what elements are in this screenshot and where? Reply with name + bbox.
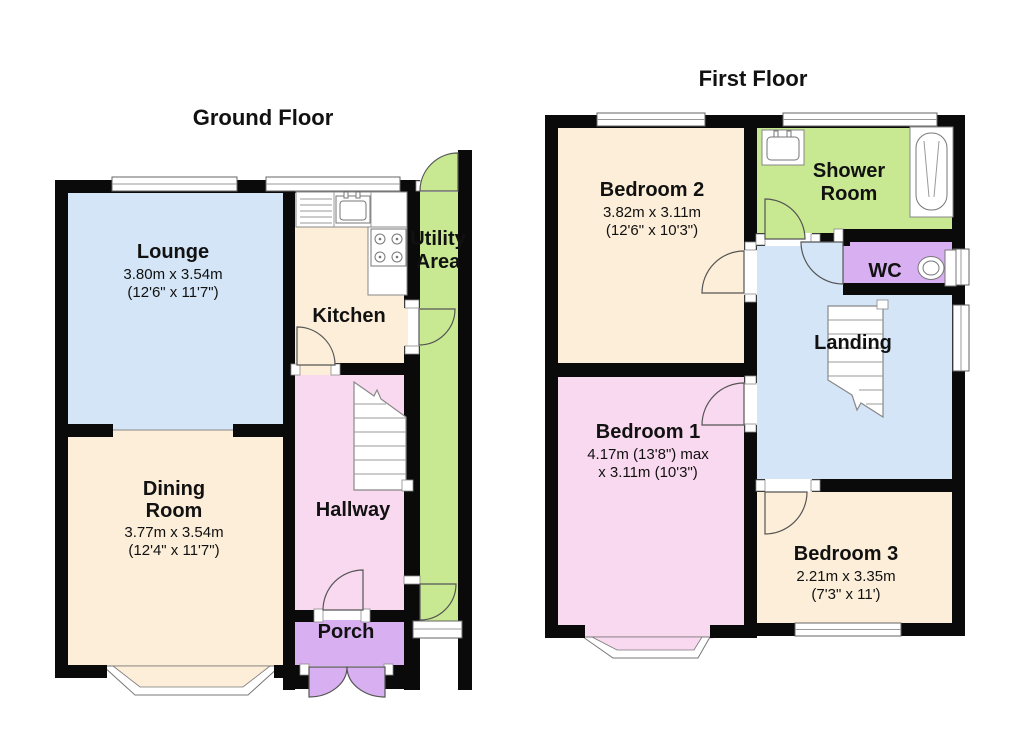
porch-front-door-left-arc	[309, 667, 347, 697]
dining-label-line2: Room	[146, 500, 203, 522]
dining-label-line1: Dining	[143, 478, 205, 500]
bedroom3-label: Bedroom 3	[794, 543, 898, 565]
room-bedroom1-baygap	[585, 620, 713, 639]
bedroom1-label: Bedroom 1	[596, 421, 700, 443]
wc-label: WC	[868, 260, 901, 282]
first-floor-plan: First Floor Bedroom 2 3.82m x 3.11m (12'…	[545, 66, 969, 658]
bathtub-icon	[910, 127, 953, 217]
bedroom1-dims-imperial: x 3.11m (10'3")	[598, 464, 698, 481]
first-floor-title: First Floor	[699, 66, 808, 91]
porch-front-door-right-arc	[347, 667, 385, 697]
porch-label: Porch	[318, 621, 375, 643]
dining-dims-imperial: (12'4" x 11'7")	[128, 542, 219, 559]
floorplan-page: Ground Floor Lounge 3.80m x 3.54m (12'6"…	[0, 0, 1024, 745]
utility-label-line1: Utility	[410, 228, 466, 250]
lounge-dims-imperial: (12'6" x 11'7")	[127, 284, 218, 301]
ground-floor-plan: Ground Floor Lounge 3.80m x 3.54m (12'6"…	[55, 105, 472, 697]
lounge-label: Lounge	[137, 241, 209, 263]
room-lounge	[67, 192, 283, 432]
floorplan-drawing: Ground Floor Lounge 3.80m x 3.54m (12'6"…	[0, 0, 1024, 745]
sink-icon	[336, 192, 370, 223]
hallway-label: Hallway	[316, 499, 391, 521]
shower-room-sink-icon	[762, 130, 804, 165]
shower-label-line1: Shower	[813, 160, 885, 182]
bedroom2-dims-imperial: (12'6" x 10'3")	[606, 222, 698, 239]
hob-icon	[371, 229, 406, 266]
bedroom2-dims-metric: 3.82m x 3.11m	[603, 204, 701, 221]
utility-top-door-arc	[420, 153, 458, 191]
room-bedroom2	[558, 128, 744, 363]
utility-label-line2: Area	[416, 251, 461, 273]
bedroom1-dims-metric: 4.17m (13'8") max	[587, 446, 709, 463]
landing-label: Landing	[814, 332, 892, 354]
shower-label-line2: Room	[821, 183, 878, 205]
ground-floor-title: Ground Floor	[193, 105, 334, 130]
bedroom2-label: Bedroom 2	[600, 179, 704, 201]
bedroom3-dims-imperial: (7'3" x 11')	[811, 586, 880, 603]
kitchen-label: Kitchen	[312, 305, 385, 327]
dining-bay-window-inner	[113, 666, 270, 687]
dining-dims-metric: 3.77m x 3.54m	[124, 524, 223, 541]
bedroom3-dims-metric: 2.21m x 3.35m	[796, 568, 895, 585]
lounge-dims-metric: 3.80m x 3.54m	[123, 266, 222, 283]
